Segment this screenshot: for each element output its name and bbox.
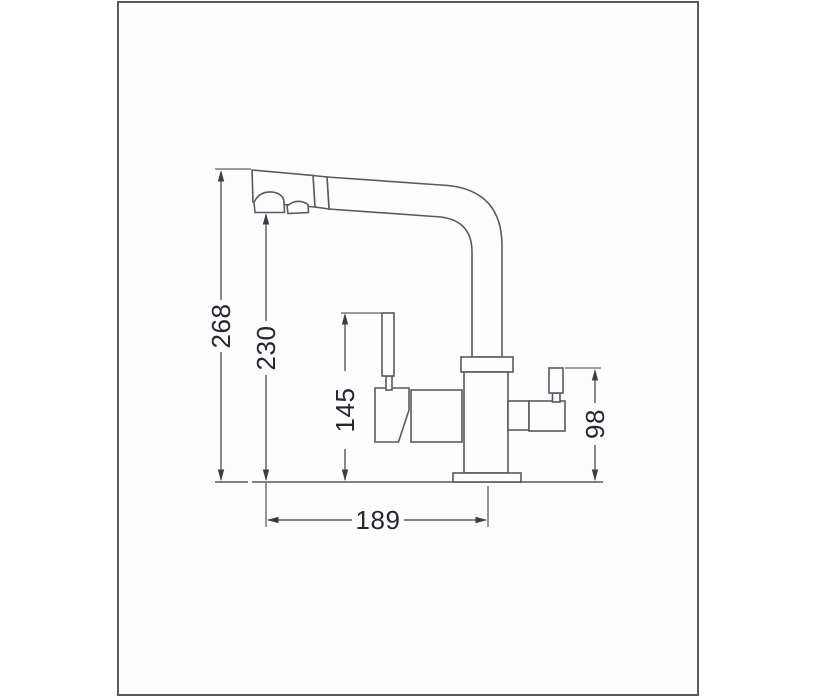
faucet-dimension-drawing: 268 230 145 98 189 (0, 0, 816, 700)
spray-nozzle-large (254, 192, 285, 213)
mixer-handle-lever (382, 313, 394, 376)
side-spout-block (529, 401, 565, 431)
spout-arm (327, 177, 502, 357)
dim-label-handle-top-height: 145 (332, 388, 358, 433)
arrow-189-left (267, 517, 279, 523)
mixer-handle-base (375, 388, 409, 442)
base-plate (453, 473, 521, 482)
arrow-98-up (592, 369, 598, 381)
dim-label-spout-outlet-height: 230 (253, 326, 279, 371)
arrow-145-down (342, 470, 348, 482)
dim-label-side-handle-height: 98 (582, 409, 608, 439)
arrow-189-right (476, 517, 488, 523)
mixer-handle-neck (386, 376, 392, 390)
arrow-145-up (342, 313, 348, 325)
side-handle-neck (553, 393, 561, 402)
spray-nozzle-small (287, 201, 309, 213)
arrow-230-down (263, 470, 269, 482)
faucet-body (464, 372, 508, 473)
side-spout-connector (508, 401, 529, 430)
mixer-cartridge-housing (411, 390, 462, 442)
arrow-268-up (218, 170, 224, 182)
arrow-268-down (218, 470, 224, 482)
arrow-98-down (592, 470, 598, 482)
body-top-flange (461, 357, 513, 372)
technical-drawing-svg (0, 0, 816, 700)
side-handle-lever (549, 368, 563, 393)
arrow-230-up (263, 213, 269, 225)
dim-label-spout-reach: 189 (356, 507, 401, 533)
faucet-outline (252, 170, 565, 482)
dim-label-overall-height: 268 (208, 304, 234, 349)
